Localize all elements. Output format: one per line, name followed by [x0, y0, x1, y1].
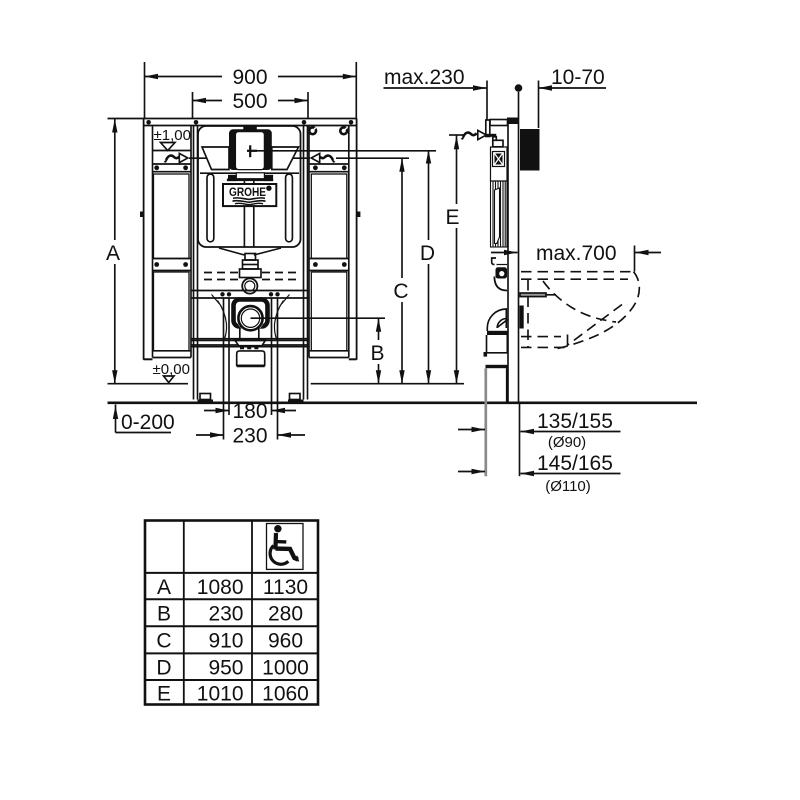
- svg-text:1060: 1060: [262, 683, 309, 706]
- svg-text:C: C: [156, 630, 171, 653]
- svg-text:10-70: 10-70: [551, 66, 605, 89]
- svg-text:0-200: 0-200: [121, 411, 175, 434]
- svg-text:1080: 1080: [197, 576, 244, 599]
- svg-text:A: A: [157, 576, 171, 599]
- svg-text:280: 280: [268, 603, 303, 626]
- svg-text:max.700: max.700: [536, 242, 617, 265]
- svg-text:A: A: [106, 242, 120, 265]
- svg-text:230: 230: [232, 425, 267, 448]
- svg-text:960: 960: [268, 630, 303, 653]
- svg-text:D: D: [420, 242, 435, 265]
- svg-text:(Ø110): (Ø110): [545, 478, 591, 495]
- svg-text:±1,00: ±1,00: [154, 127, 191, 144]
- svg-text:B: B: [157, 603, 171, 626]
- svg-text:D: D: [156, 657, 171, 680]
- svg-text:GROHE: GROHE: [229, 187, 266, 199]
- svg-text:910: 910: [208, 630, 243, 653]
- svg-text:B: B: [370, 342, 384, 365]
- svg-text:950: 950: [208, 657, 243, 680]
- svg-text:max.230: max.230: [384, 66, 465, 89]
- svg-text:E: E: [445, 206, 459, 229]
- svg-text:145/165: 145/165: [537, 452, 613, 475]
- svg-text:1000: 1000: [262, 657, 309, 680]
- svg-text:1130: 1130: [263, 576, 308, 599]
- svg-text:500: 500: [232, 90, 267, 113]
- svg-text:900: 900: [232, 66, 267, 89]
- svg-text:230: 230: [208, 603, 243, 626]
- svg-text:135/155: 135/155: [537, 410, 613, 433]
- svg-text:(Ø90): (Ø90): [548, 434, 586, 451]
- svg-text:E: E: [157, 683, 171, 706]
- svg-text:C: C: [393, 280, 408, 303]
- svg-text:1010: 1010: [197, 683, 244, 706]
- svg-text:180: 180: [232, 400, 267, 423]
